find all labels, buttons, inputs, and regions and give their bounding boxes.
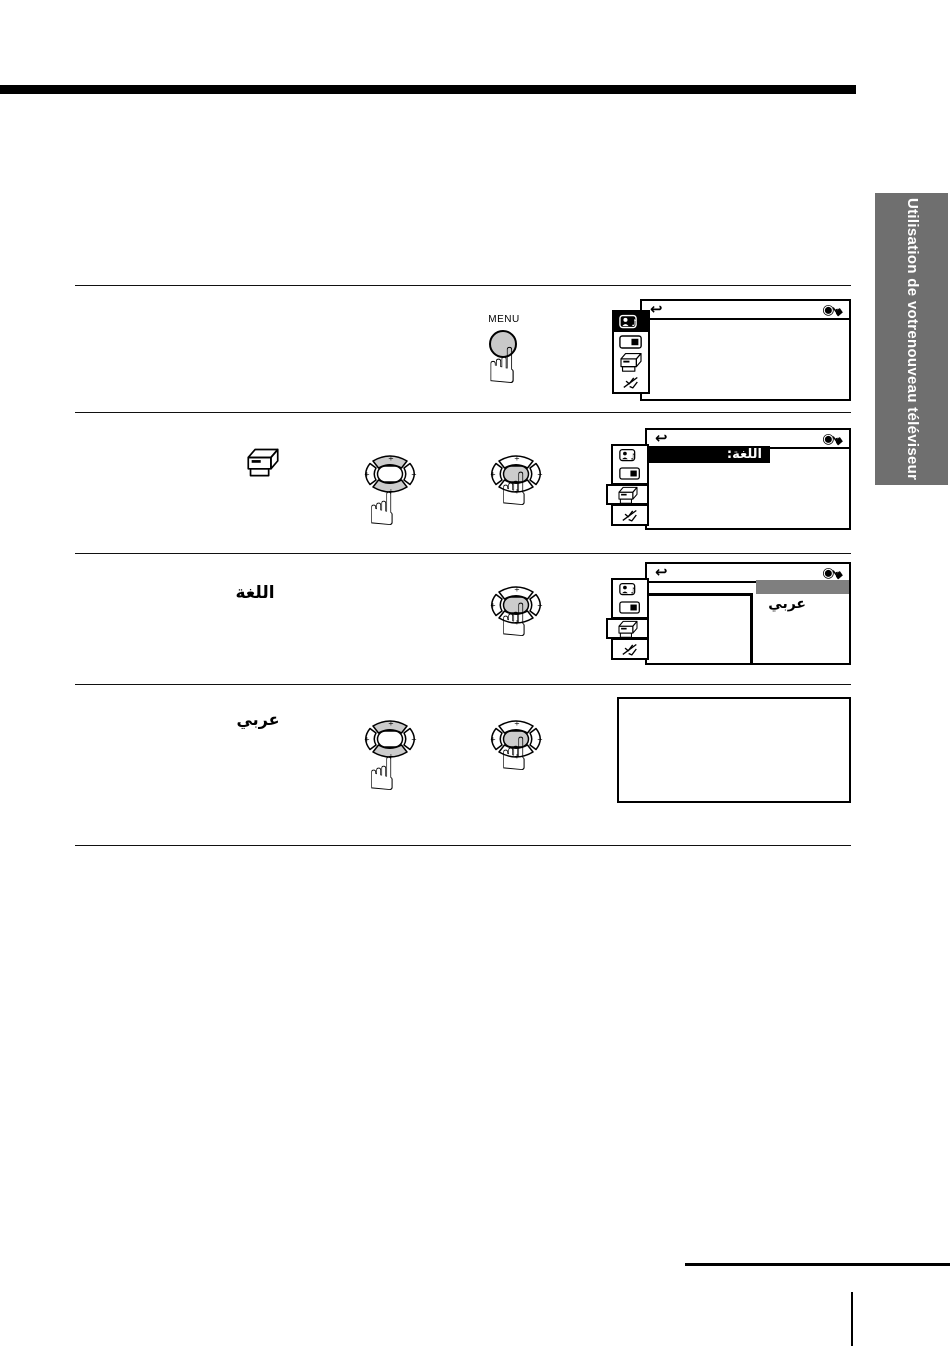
tv-menu-icon-strip-3-lower	[611, 638, 649, 660]
setup-box-icon	[617, 620, 639, 638]
menu-tab-user-sound: ♪	[614, 312, 648, 332]
pressing-hand-icon: ☝	[500, 731, 528, 777]
return-arrow-icon: ↩	[655, 564, 668, 581]
tv-screen-1: ↩ ◉☛	[640, 299, 851, 401]
row-divider	[75, 412, 851, 413]
tv-menu-icon-strip-2-selected	[606, 484, 649, 505]
tv-menu-icon-strip-3-selected	[606, 618, 649, 639]
tv-screen-2: ↩ ◉☛	[645, 428, 851, 530]
menu-tab-display	[613, 599, 647, 618]
pressing-hand-icon: ☝	[368, 751, 396, 797]
menu-tab-display	[613, 465, 647, 484]
plus-mark: +	[411, 471, 417, 479]
display-icon	[619, 334, 643, 350]
setup-box-icon	[246, 447, 280, 477]
tv-screen-3: ↩ ◉☛	[645, 562, 851, 665]
option-highlight-bar	[756, 580, 849, 594]
music-note-icon: ♪	[630, 585, 635, 595]
footer-rule	[685, 1263, 950, 1266]
pressing-hand-icon: ☝	[500, 466, 528, 512]
submenu-border-left	[750, 593, 753, 663]
user-sound-icon: ♪	[619, 314, 643, 330]
plus-mark: +	[388, 455, 394, 463]
tv-menu-icon-strip-3-upper: ♪	[611, 578, 649, 619]
plus-mark: +	[537, 736, 543, 744]
language-option-arabic: عربي	[756, 596, 806, 612]
pressing-hand-icon: ☝	[368, 486, 396, 532]
step-label-language: اللغة	[225, 583, 285, 603]
plus-mark: +	[537, 602, 543, 610]
music-note-icon: ♪	[631, 318, 637, 329]
plus-mark: +	[490, 736, 496, 744]
plus-mark: +	[364, 736, 370, 744]
setup-box-icon	[619, 352, 643, 372]
display-icon	[619, 466, 641, 481]
plus-mark: +	[388, 720, 394, 728]
menu-button-label: MENU	[481, 314, 527, 325]
menu-tab-setup	[614, 352, 648, 372]
plus-mark: +	[364, 471, 370, 479]
submenu-border-top	[647, 593, 753, 596]
page-top-rule	[0, 85, 856, 94]
plus-mark: +	[490, 471, 496, 479]
plus-mark: +	[411, 736, 417, 744]
tv-menu-icon-strip-1: ♪	[612, 310, 650, 394]
ok-cursor-icons: ◉☛	[822, 564, 845, 581]
music-note-icon: ♪	[630, 451, 635, 461]
tv-screen-4-blank	[617, 697, 851, 803]
chapter-tab-line1: Utilisation de votre	[902, 198, 921, 339]
return-arrow-icon: ↩	[655, 430, 668, 447]
antenna-icon	[622, 375, 640, 389]
tv-menu-icon-strip-2-upper: ♪	[611, 444, 649, 485]
footer-corner-mark	[851, 1292, 853, 1346]
user-sound-icon: ♪	[619, 448, 641, 463]
menu-tab-user-sound: ♪	[613, 446, 647, 465]
user-sound-icon: ♪	[619, 582, 641, 597]
tv-menu-topbar: ↩ ◉☛	[642, 301, 849, 320]
display-icon	[619, 600, 641, 615]
setup-box-icon	[617, 486, 639, 504]
chapter-tab-line2: nouveau téléviseur	[902, 339, 921, 480]
row-divider	[75, 285, 851, 286]
pressing-hand-icon: ☝	[487, 341, 517, 391]
tv-menu-icon-strip-2-lower	[611, 504, 649, 526]
menu-tab-antenna	[613, 640, 647, 658]
plus-mark: +	[537, 471, 543, 479]
menu-tab-setup-selected	[608, 620, 647, 638]
pressing-hand-icon: ☝	[500, 597, 528, 643]
row-divider	[75, 684, 851, 685]
menu-tab-setup-selected	[608, 486, 647, 504]
chapter-tab: Utilisation de votre nouveau téléviseur	[875, 193, 948, 485]
menu-tab-display	[614, 332, 648, 352]
return-arrow-icon: ↩	[650, 301, 663, 318]
antenna-icon	[621, 508, 639, 522]
row-divider	[75, 553, 851, 554]
menu-tab-antenna	[614, 372, 648, 392]
menu-tab-antenna	[613, 506, 647, 524]
menu-tab-user-sound: ♪	[613, 580, 647, 599]
step-label-arabic: عربي	[228, 710, 288, 729]
menu-row-language: اللغة:	[649, 446, 770, 463]
ok-cursor-icons: ◉☛	[822, 430, 845, 447]
row-divider	[75, 845, 851, 846]
antenna-icon	[621, 642, 639, 656]
ok-cursor-icons: ◉☛	[822, 301, 845, 318]
plus-mark: +	[490, 602, 496, 610]
